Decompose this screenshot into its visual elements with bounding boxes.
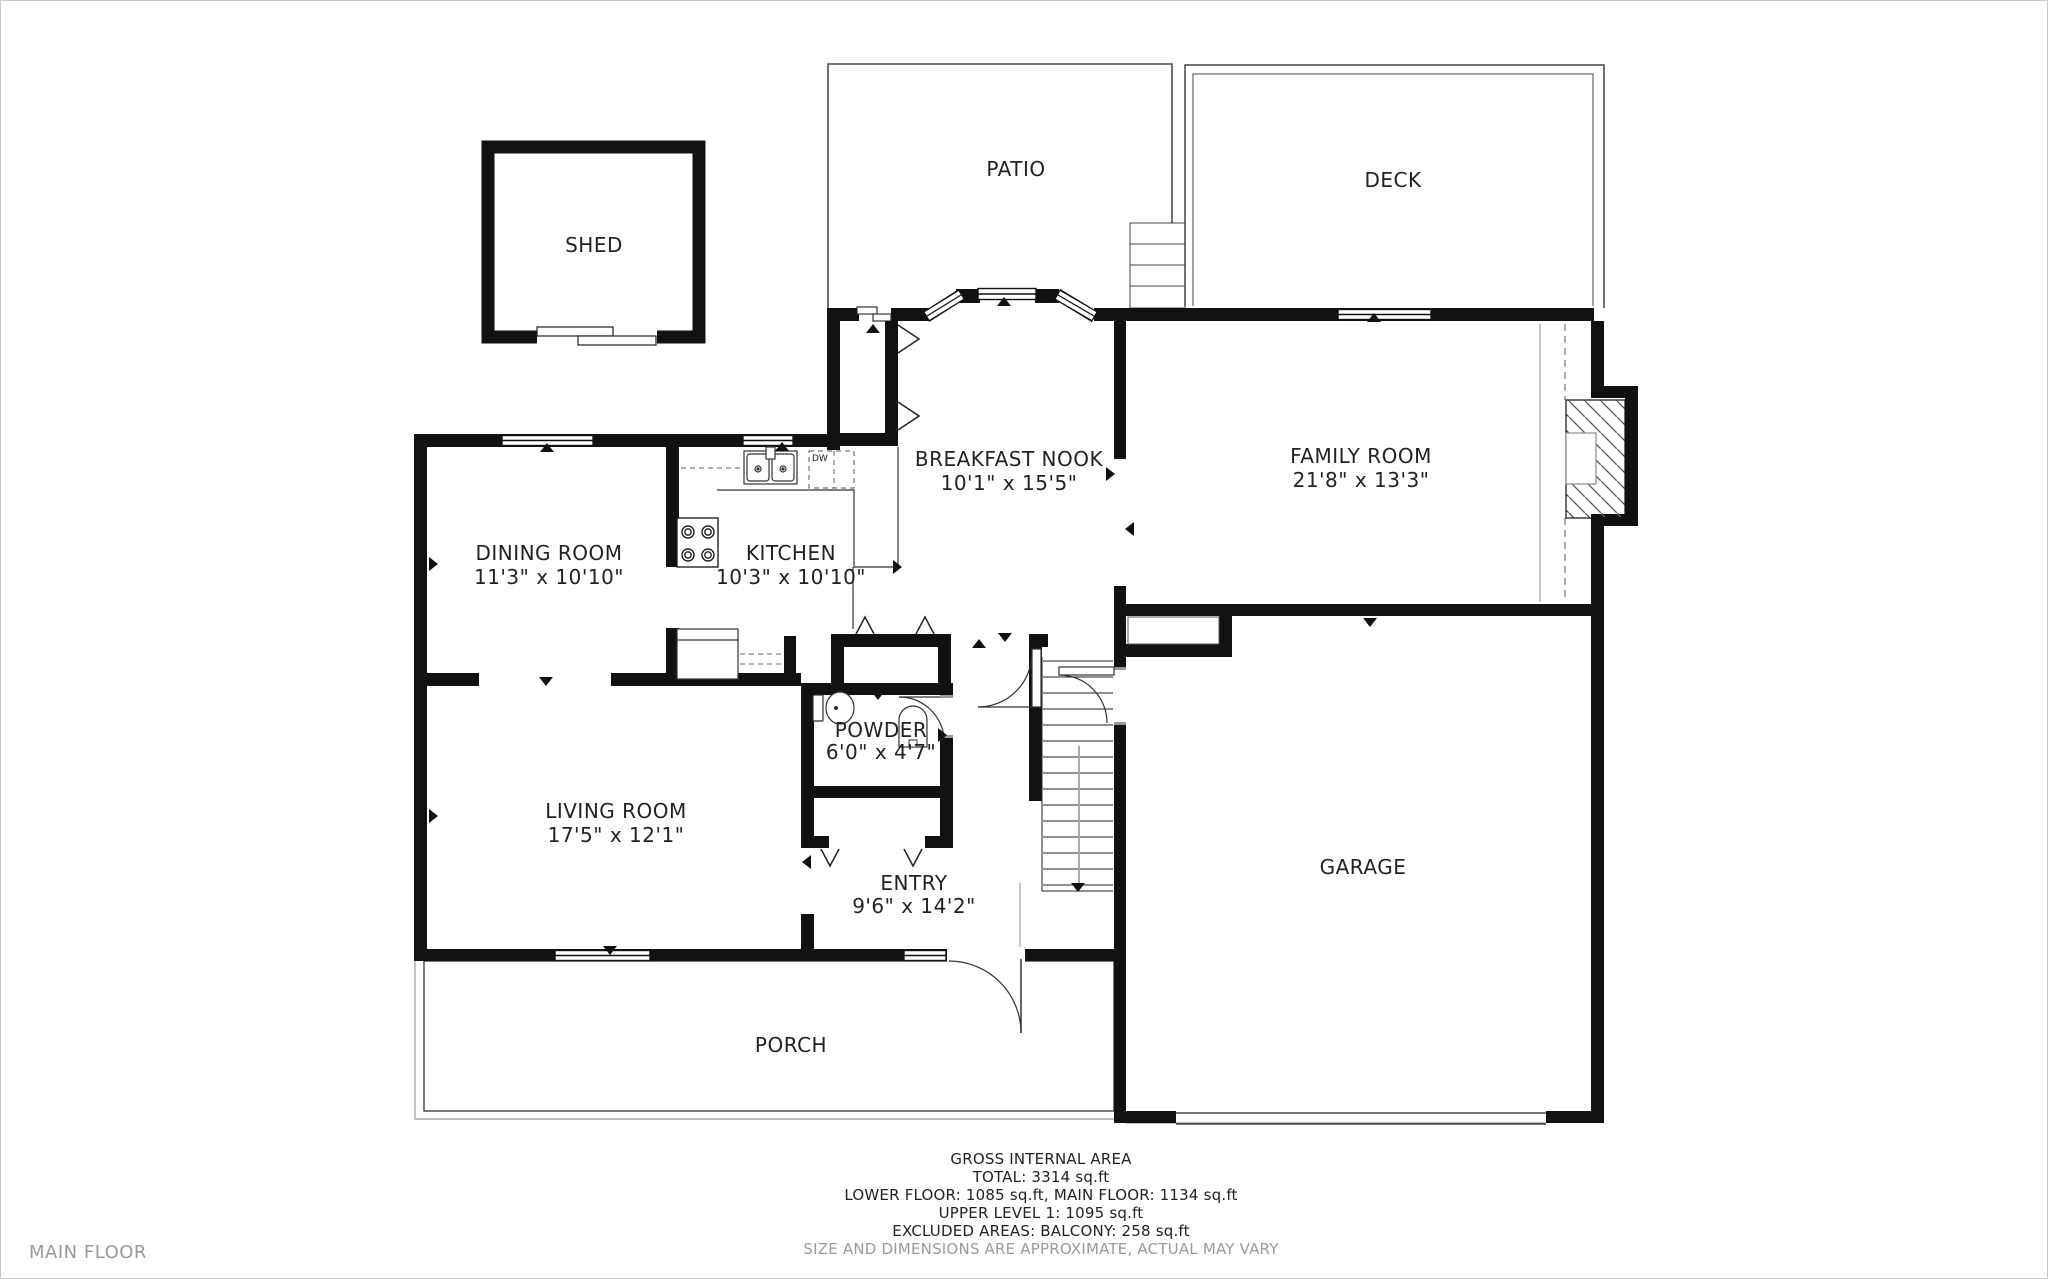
summary-excluded: EXCLUDED AREAS: BALCONY: 258 sq.ft [892,1222,1189,1240]
floor-plan-drawing: DW [1,1,2048,1279]
porch-outline [415,961,1546,1123]
room-label-kitchen: KITCHEN [746,541,836,565]
room-label-family-room: FAMILY ROOM [1290,444,1432,468]
kitchen-window [743,436,793,446]
room-label-living-room: LIVING ROOM [545,799,687,823]
room-dims-breakfast-nook: 10'1" x 15'5" [941,471,1078,495]
room-label-dining-room: DINING ROOM [475,541,622,565]
room-label-garage: GARAGE [1320,855,1407,879]
pantry-door-chevrons [898,325,919,430]
kitchen-peninsula [677,629,738,679]
family-room-floor-lines [1540,324,1565,602]
hall-door [978,649,1041,707]
floor-name: MAIN FLOOR [29,1242,147,1263]
garage-landing-step [1128,617,1219,644]
patio-deck-steps [1130,223,1185,308]
garage-entry-door [1059,667,1114,723]
room-dims-living-room: 17'5" x 12'1" [548,823,685,847]
room-label-shed: SHED [565,233,623,257]
dishwasher-label: DW [812,454,828,464]
patio-sliding-door [857,307,891,321]
dishwasher: DW [809,451,854,488]
summary-lower-main: LOWER FLOOR: 1085 sq.ft, MAIN FLOOR: 113… [844,1186,1237,1204]
floor-plan-page: DW [0,0,2048,1279]
summary-gross-internal-area: GROSS INTERNAL AREA [950,1150,1132,1168]
room-dims-family-room: 21'8" x 13'3" [1293,468,1430,492]
area-summary: GROSS INTERNAL AREA TOTAL: 3314 sq.ft LO… [803,1150,1279,1258]
living-room-window [555,951,650,961]
fireplace [1566,400,1625,518]
summary-upper-level: UPPER LEVEL 1: 1095 sq.ft [939,1204,1144,1222]
stove [677,518,718,567]
family-room-window [1338,310,1431,320]
opening-markers [429,297,1602,955]
summary-total: TOTAL: 3314 sq.ft [972,1168,1110,1186]
summary-disclaimer: SIZE AND DIMENSIONS ARE APPROXIMATE, ACT… [803,1240,1279,1258]
house-walls [414,289,1638,1123]
room-label-patio: PATIO [986,157,1045,181]
entry-window [904,951,946,961]
kitchen-sink [744,447,797,484]
bay-window-right [1057,294,1095,317]
room-dims-dining-room: 11'3" x 10'10" [474,565,624,589]
room-dims-entry: 9'6" x 14'2" [852,894,976,918]
room-label-entry: ENTRY [880,871,947,895]
bay-window-center [978,289,1036,300]
bay-window-left [926,294,962,317]
garage-door [1176,1113,1546,1124]
room-label-porch: PORCH [755,1033,827,1057]
room-label-deck: DECK [1364,168,1422,192]
room-label-powder: POWDER [835,718,928,742]
entry-closet-bifold [821,849,922,866]
room-dims-kitchen: 10'3" x 10'10" [716,565,866,589]
patio-outline [828,64,1172,308]
hall-closet-bifold [856,617,934,634]
room-dims-powder: 6'0" x 4'7" [826,740,936,764]
room-label-breakfast-nook: BREAKFAST NOOK [915,447,1104,471]
windows [502,289,1431,961]
staircase [1042,657,1113,891]
